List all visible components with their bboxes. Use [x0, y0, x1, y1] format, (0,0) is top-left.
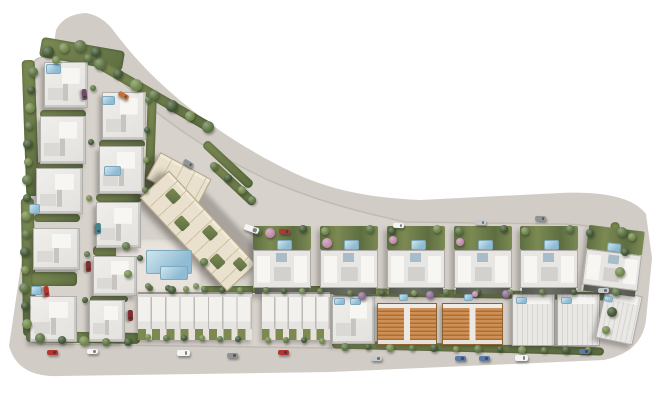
roof-garden-patch — [232, 257, 247, 273]
tree — [443, 289, 449, 295]
tree — [299, 225, 307, 233]
tree — [84, 54, 92, 62]
tree — [265, 337, 271, 343]
tree — [124, 338, 132, 346]
tree — [358, 292, 366, 300]
tree — [166, 100, 178, 112]
tree — [389, 236, 397, 244]
parked-car — [392, 222, 403, 227]
tree — [199, 335, 205, 341]
tree — [122, 242, 130, 250]
tree — [456, 238, 464, 246]
tree — [82, 297, 88, 303]
tree — [238, 186, 246, 194]
tree — [628, 233, 636, 241]
villa-building — [40, 116, 86, 164]
tree — [409, 345, 415, 351]
parked-car — [85, 260, 90, 271]
tree — [185, 111, 195, 121]
tree — [281, 288, 287, 294]
tree — [23, 139, 33, 149]
tree — [24, 158, 32, 166]
site-objects-layer — [0, 0, 660, 410]
tree — [586, 229, 594, 237]
swimming-pool — [334, 298, 345, 305]
tree — [193, 283, 199, 289]
villa-building — [36, 168, 83, 214]
tree — [219, 287, 225, 293]
tree — [90, 85, 96, 91]
parked-car — [43, 285, 49, 297]
tree — [20, 247, 30, 257]
tree — [341, 343, 349, 351]
tree — [365, 344, 371, 350]
roof-garden-patch — [209, 253, 226, 270]
swimming-pool — [478, 240, 493, 250]
tree — [201, 286, 207, 292]
swimming-pool — [516, 297, 527, 304]
roof-garden-patch — [202, 224, 219, 241]
tree — [25, 103, 35, 113]
swimming-pool — [607, 242, 622, 253]
parked-car — [127, 309, 132, 320]
tree — [145, 334, 151, 340]
tree — [455, 227, 463, 235]
rowhouse-block — [138, 292, 252, 340]
tree — [433, 225, 441, 233]
tree — [617, 227, 627, 237]
swimming-pool — [344, 240, 359, 250]
villa-roof — [520, 250, 578, 288]
tree — [562, 346, 570, 354]
swimming-pool — [544, 240, 559, 250]
villa-roof — [387, 250, 445, 288]
tree — [541, 347, 547, 353]
parked-car — [87, 349, 98, 354]
tree — [58, 336, 66, 344]
tree — [21, 211, 31, 221]
tree — [94, 58, 106, 70]
parked-car — [515, 355, 528, 361]
villa-roof — [253, 250, 311, 288]
tree — [22, 230, 30, 238]
parked-car — [579, 349, 590, 354]
swimming-pool — [104, 166, 121, 176]
swimming-pool — [31, 286, 42, 295]
tree — [102, 338, 110, 346]
parked-car — [95, 222, 100, 233]
parked-car — [474, 219, 485, 224]
parked-car — [455, 356, 466, 361]
tree — [168, 286, 176, 294]
tree — [366, 225, 374, 233]
twin-villa-building — [454, 226, 512, 294]
parked-car — [278, 350, 289, 355]
tree — [21, 266, 29, 274]
green-patch — [34, 214, 80, 222]
parked-car — [81, 88, 87, 99]
green-patch — [31, 272, 77, 286]
tree — [224, 174, 232, 182]
tree — [571, 289, 577, 295]
villa-building — [96, 202, 141, 248]
tree — [388, 227, 396, 235]
tree — [566, 225, 574, 233]
tree — [518, 346, 526, 354]
tree — [113, 69, 123, 79]
tree — [200, 258, 208, 266]
tree — [163, 335, 169, 341]
orange-roof-house — [442, 303, 503, 345]
tree — [181, 335, 187, 341]
tree — [22, 319, 32, 329]
parked-car — [227, 353, 238, 358]
parked-car — [47, 350, 58, 355]
tree — [137, 255, 143, 261]
swimming-pool — [46, 64, 61, 74]
tree — [19, 283, 29, 293]
swimming-pool — [561, 297, 572, 304]
tree — [28, 67, 38, 77]
tree — [521, 227, 529, 235]
tree — [265, 228, 275, 238]
tree — [84, 251, 90, 257]
tree — [52, 56, 60, 64]
tree — [145, 283, 151, 289]
tree — [283, 337, 289, 343]
parked-car — [479, 356, 490, 361]
tree — [612, 288, 620, 296]
tree — [602, 326, 610, 334]
tree — [202, 121, 214, 133]
tree — [25, 122, 33, 130]
tree — [79, 336, 89, 346]
tree — [210, 162, 218, 170]
tree — [130, 79, 142, 91]
tree — [411, 290, 417, 296]
tree — [321, 227, 329, 235]
tree — [143, 157, 149, 163]
tree — [217, 336, 223, 342]
swimming-pool — [102, 96, 115, 105]
tree — [248, 196, 256, 204]
swimming-pool — [160, 266, 188, 280]
tree — [615, 267, 625, 277]
rowhouse-block — [262, 292, 330, 340]
parked-car — [177, 350, 190, 356]
roof-garden-patch — [174, 215, 191, 232]
villa-building — [33, 228, 80, 270]
tree — [235, 336, 241, 342]
tree — [142, 187, 148, 193]
tree — [426, 291, 434, 299]
swimming-pool — [399, 294, 408, 301]
tree — [23, 194, 31, 202]
villa-roof — [320, 250, 378, 288]
tree — [91, 47, 101, 57]
villa-building — [89, 300, 125, 342]
tree — [379, 290, 385, 296]
twin-villa-building — [320, 226, 378, 294]
tree — [472, 291, 478, 297]
villa-roof — [454, 250, 512, 288]
swimming-pool — [29, 204, 40, 214]
tree — [317, 288, 323, 294]
tree — [299, 288, 305, 294]
roof-garden-patch — [165, 188, 182, 205]
tree — [124, 270, 132, 278]
tree — [322, 238, 332, 248]
tree — [263, 287, 269, 293]
parked-car — [598, 288, 609, 293]
tree — [237, 287, 243, 293]
tree — [145, 97, 151, 103]
tree — [88, 139, 94, 145]
tree — [430, 344, 438, 352]
tree — [35, 333, 45, 343]
parked-car — [534, 215, 545, 220]
twin-villa-building — [253, 226, 311, 294]
tree — [347, 290, 353, 296]
tree — [21, 302, 29, 310]
tree — [497, 346, 503, 352]
green-patch — [96, 194, 142, 202]
tree — [86, 195, 92, 201]
tree — [386, 344, 394, 352]
orange-roof-house — [377, 303, 437, 345]
tree — [183, 286, 189, 292]
tree — [27, 86, 35, 94]
tree — [474, 345, 482, 353]
tree — [22, 175, 32, 185]
site-plan-render — [0, 0, 660, 410]
tree — [607, 307, 617, 317]
tree — [59, 43, 69, 53]
tree — [502, 290, 510, 298]
tree — [301, 337, 307, 343]
twin-villa-building — [520, 226, 578, 294]
tree — [453, 346, 459, 352]
tree — [144, 127, 150, 133]
entrance-band — [522, 288, 576, 294]
swimming-pool — [411, 240, 426, 250]
swimming-pool — [277, 240, 292, 250]
tree — [319, 338, 325, 344]
tree — [500, 225, 508, 233]
tree — [621, 248, 629, 256]
parked-car — [371, 356, 382, 361]
tree — [539, 289, 545, 295]
tree — [74, 40, 86, 52]
parked-car — [278, 228, 289, 234]
